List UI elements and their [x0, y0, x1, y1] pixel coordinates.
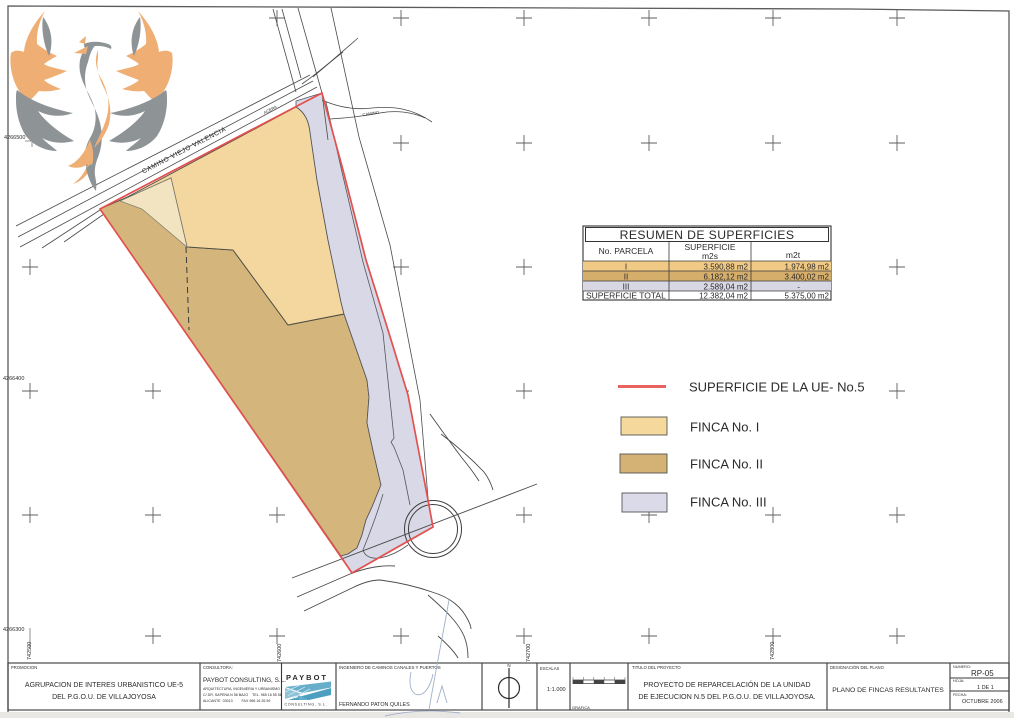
svg-text:2.589,04 m2: 2.589,04 m2: [704, 283, 749, 292]
svg-text:m2t: m2t: [786, 250, 801, 260]
svg-text:I: I: [625, 263, 627, 272]
svg-text:NUMERO:: NUMERO:: [953, 665, 971, 669]
svg-text:3.590,88 m2: 3.590,88 m2: [704, 263, 749, 272]
svg-text:OCTUBRE 2006: OCTUBRE 2006: [962, 699, 1003, 705]
svg-text:FINCA No. III: FINCA No. III: [690, 495, 767, 510]
svg-text:4266400: 4266400: [3, 376, 24, 382]
svg-text:-: -: [797, 283, 800, 292]
svg-text:742500: 742500: [27, 642, 33, 660]
svg-text:742700: 742700: [526, 644, 532, 662]
svg-text:6.182,12 m2: 6.182,12 m2: [704, 273, 749, 282]
svg-text:RESUMEN DE SUPERFICIES: RESUMEN DE SUPERFICIES: [620, 228, 795, 242]
svg-text:1 DE 1: 1 DE 1: [977, 685, 994, 691]
svg-text:SUPERFICIE TOTAL: SUPERFICIE TOTAL: [586, 291, 666, 301]
svg-text:CONSULTORA:: CONSULTORA:: [203, 665, 233, 670]
svg-text:ALICANTE 03013 FAX 96: ALICANTE 03013 FAX 966 16 26 59: [203, 699, 270, 703]
svg-text:5.375,00 m2: 5.375,00 m2: [785, 292, 830, 301]
svg-text:PAYBOT: PAYBOT: [286, 673, 328, 682]
svg-text:12.382,04 m2: 12.382,04 m2: [699, 292, 748, 301]
svg-text:TITULO DEL PROYECTO: TITULO DEL PROYECTO: [632, 665, 681, 670]
svg-text:1:1.000: 1:1.000: [547, 687, 566, 693]
svg-text:DEL P.G.O.U. DE VILLAJOYOSA: DEL P.G.O.U. DE VILLAJOYOSA: [52, 694, 156, 701]
svg-text:DESIGNACIÓN DEL PLANO: DESIGNACIÓN DEL PLANO: [830, 665, 885, 670]
svg-text:742600: 742600: [277, 644, 283, 662]
svg-text:3.400,02 m2: 3.400,02 m2: [785, 273, 830, 282]
svg-text:FERNANDO PATON QUILES: FERNANDO PATON QUILES: [339, 702, 410, 708]
svg-text:1.974,98 m2: 1.974,98 m2: [785, 263, 830, 272]
svg-text:m2s: m2s: [702, 251, 718, 261]
svg-text:SUPERFICIE DE LA UE- No.5: SUPERFICIE DE LA UE- No.5: [689, 380, 865, 395]
svg-text:No. PARCELA: No. PARCELA: [599, 246, 654, 256]
svg-text:AGRUPACION DE INTERES URBANIST: AGRUPACION DE INTERES URBANISTICO UE-5: [25, 682, 183, 689]
svg-text:INGENIERO DE CAMINOS CANALES Y: INGENIERO DE CAMINOS CANALES Y PUERTOS: [339, 665, 441, 670]
svg-text:II: II: [624, 273, 628, 282]
svg-text:PROMOCION: PROMOCION: [11, 665, 37, 670]
svg-text:C/ DR. SAPENA N 58 BAJO TEL: C/ DR. SAPENA N 58 BAJO TEL. 965 16 55 5…: [203, 693, 282, 697]
svg-text:HOJA:: HOJA:: [953, 679, 964, 683]
svg-text:GRAFICA: GRAFICA: [572, 705, 590, 710]
svg-text:FINCA No. II: FINCA No. II: [690, 457, 763, 472]
svg-text:RP-05: RP-05: [971, 669, 994, 678]
svg-text:PROYECTO DE REPARCELACIÓN DE L: PROYECTO DE REPARCELACIÓN DE LA UNIDAD: [643, 680, 810, 689]
svg-text:CONSULTING, S.L.: CONSULTING, S.L.: [285, 703, 328, 707]
svg-text:FINCA No. I: FINCA No. I: [690, 420, 759, 435]
svg-text:PAYBOT CONSULTING, S.L.: PAYBOT CONSULTING, S.L.: [203, 677, 286, 684]
svg-text:ESCALAS: ESCALAS: [540, 666, 560, 671]
svg-text:DE EJECUCION N.5 DEL P.G.O.U.: DE EJECUCION N.5 DEL P.G.O.U. DE VILLAJO…: [638, 692, 815, 701]
svg-text:N: N: [507, 663, 510, 668]
svg-text:742800: 742800: [770, 642, 776, 660]
svg-text:PLANO DE FINCAS RESULTANTES: PLANO DE FINCAS RESULTANTES: [832, 687, 944, 694]
svg-text:ARQUITECTURA, INGENIERIA Y URB: ARQUITECTURA, INGENIERIA Y URBANISMO: [203, 687, 280, 691]
svg-text:4266300: 4266300: [3, 627, 24, 633]
svg-text:FECHA:: FECHA:: [953, 693, 967, 697]
svg-text:4266500: 4266500: [4, 135, 25, 141]
